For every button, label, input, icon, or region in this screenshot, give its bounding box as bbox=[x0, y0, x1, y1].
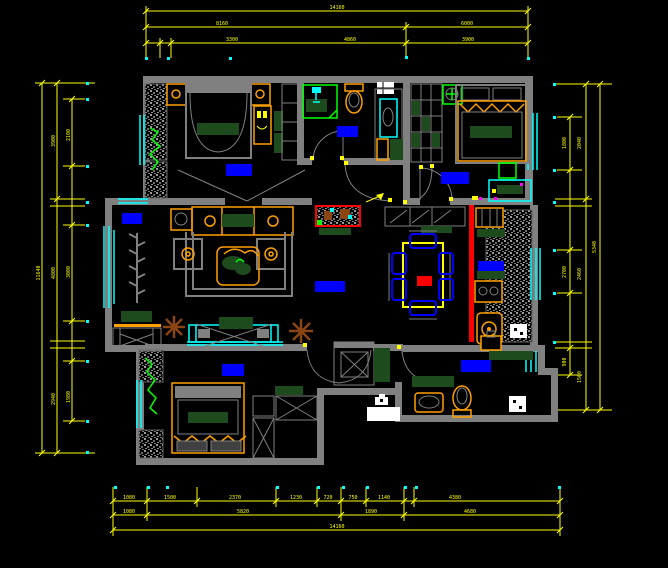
room-label-bathroom2 bbox=[461, 360, 491, 372]
floor-plan-drawing: 14160 8160 6000 3300 4860 3900 1080 1500… bbox=[0, 0, 668, 568]
hatched-wall bbox=[139, 430, 163, 458]
hall-wardrobe-icon bbox=[411, 84, 442, 162]
entry-arrow bbox=[366, 193, 384, 202]
dim-text: 3900 bbox=[462, 37, 474, 43]
window-bedroom1-left bbox=[140, 115, 144, 165]
dim-text: 11640 bbox=[36, 265, 42, 280]
dim-text: 5340 bbox=[592, 241, 598, 253]
shower-icon bbox=[303, 85, 337, 118]
bedroom-top-right bbox=[411, 84, 531, 201]
dresser-icon bbox=[254, 106, 271, 144]
door-bedroom3-double bbox=[307, 350, 371, 383]
bathroom-bottom bbox=[412, 331, 533, 417]
reference-dots bbox=[114, 486, 561, 489]
armchair-icon bbox=[174, 239, 202, 269]
bed-icon bbox=[172, 383, 246, 453]
dim-text: 3000 bbox=[66, 266, 72, 278]
dim-text: 1140 bbox=[378, 495, 390, 501]
dim-text: 2700 bbox=[562, 266, 568, 278]
small-appliance-icon bbox=[510, 324, 527, 338]
washbasin-icon bbox=[375, 89, 403, 162]
bedroom-bottom-left bbox=[145, 358, 317, 458]
dimension-chain-top: 14160 8160 6000 3300 4860 3900 bbox=[143, 5, 531, 60]
dim-text: 2370 bbox=[229, 495, 241, 501]
dim-text: 3900 bbox=[51, 135, 57, 147]
door-corridor-left bbox=[345, 164, 391, 201]
toilet-icon bbox=[453, 386, 471, 417]
dim-text: 4800 bbox=[51, 267, 57, 279]
window-top-white bbox=[377, 82, 394, 94]
highlighted-wall bbox=[469, 205, 474, 342]
living-room bbox=[113, 207, 313, 351]
dining-room bbox=[385, 196, 482, 342]
room-label-living bbox=[122, 213, 142, 224]
room-label-kitchen bbox=[478, 261, 504, 272]
room-label-bathroom1 bbox=[337, 126, 358, 137]
dim-text: 720 bbox=[323, 495, 332, 501]
desk-chair-icon bbox=[489, 163, 531, 201]
dim-text: 750 bbox=[348, 495, 357, 501]
coat-rack-icon bbox=[129, 233, 145, 303]
dim-text: 8160 bbox=[216, 21, 228, 27]
reference-dots bbox=[145, 56, 530, 60]
nightstand-icon bbox=[167, 84, 186, 105]
dim-text: 2040 bbox=[577, 137, 583, 149]
sink-icon bbox=[476, 208, 503, 227]
plant-icon bbox=[163, 316, 185, 338]
dim-text: 4680 bbox=[464, 509, 476, 515]
room-label-bedroom2 bbox=[441, 172, 469, 184]
dim-text: 1890 bbox=[365, 509, 377, 515]
nightstand-icon bbox=[251, 84, 270, 105]
dimension-chain-left: 11640 3900 4800 2940 2100 3000 1980 bbox=[35, 80, 95, 456]
dim-text: 5820 bbox=[237, 509, 249, 515]
dim-text: 900 bbox=[562, 357, 568, 366]
dim-text: 2940 bbox=[51, 393, 57, 405]
washbasin-icon bbox=[415, 393, 443, 412]
soap-dish-icon bbox=[509, 396, 526, 412]
dim-text: 1800 bbox=[562, 137, 568, 149]
corner-table-icon bbox=[171, 209, 192, 230]
dim-text: 14160 bbox=[329, 524, 344, 530]
dim-text: 6000 bbox=[461, 21, 473, 27]
dim-text: 1080 bbox=[123, 509, 135, 515]
hatched-wall bbox=[145, 162, 167, 198]
armchair-icon bbox=[257, 239, 285, 269]
bathroom-top bbox=[303, 82, 403, 162]
dimension-chain-right: 1800 2700 900 2040 2460 1500 5340 bbox=[553, 81, 612, 413]
dim-text: 3300 bbox=[226, 37, 238, 43]
shoe-cabinet-icon bbox=[385, 207, 465, 233]
hallway bbox=[315, 206, 390, 385]
dim-text: 4860 bbox=[344, 37, 356, 43]
dim-text: 2100 bbox=[66, 129, 72, 141]
bedroom-top-left bbox=[150, 84, 300, 176]
shelf bbox=[319, 228, 351, 235]
bed-icon bbox=[456, 85, 528, 163]
bed-icon bbox=[186, 84, 251, 158]
wardrobe-icon bbox=[253, 396, 317, 458]
coffee-table-plant-icon bbox=[217, 247, 259, 285]
cad-canvas[interactable]: 14160 8160 6000 3300 4860 3900 1080 1500… bbox=[0, 0, 668, 568]
dim-text: 1500 bbox=[164, 495, 176, 501]
dim-text: 1500 bbox=[577, 371, 583, 383]
reference-dots bbox=[553, 83, 556, 411]
dim-text: 4380 bbox=[449, 495, 461, 501]
room-label-bedroom3 bbox=[222, 364, 244, 376]
plant-icon bbox=[289, 319, 313, 343]
reference-dots bbox=[86, 82, 89, 454]
dimension-chain-bottom: 1080 1500 2370 1230 720 750 1140 4380 10… bbox=[110, 486, 563, 536]
dim-text: 2460 bbox=[577, 268, 583, 280]
dim-text: 1080 bbox=[123, 495, 135, 501]
decor-cabinet-icon bbox=[316, 206, 360, 226]
stove-icon bbox=[475, 281, 502, 302]
dim-text: 14160 bbox=[329, 5, 344, 11]
dining-table-icon bbox=[403, 243, 443, 307]
toilet-icon bbox=[345, 84, 363, 113]
watermark-bar bbox=[367, 407, 400, 421]
niche-cabinet-icon bbox=[334, 342, 390, 385]
dim-text: 1230 bbox=[290, 495, 302, 501]
room-label-bedroom1 bbox=[226, 164, 252, 176]
dim-text: 1980 bbox=[66, 391, 72, 403]
room-label-hall bbox=[315, 281, 345, 292]
